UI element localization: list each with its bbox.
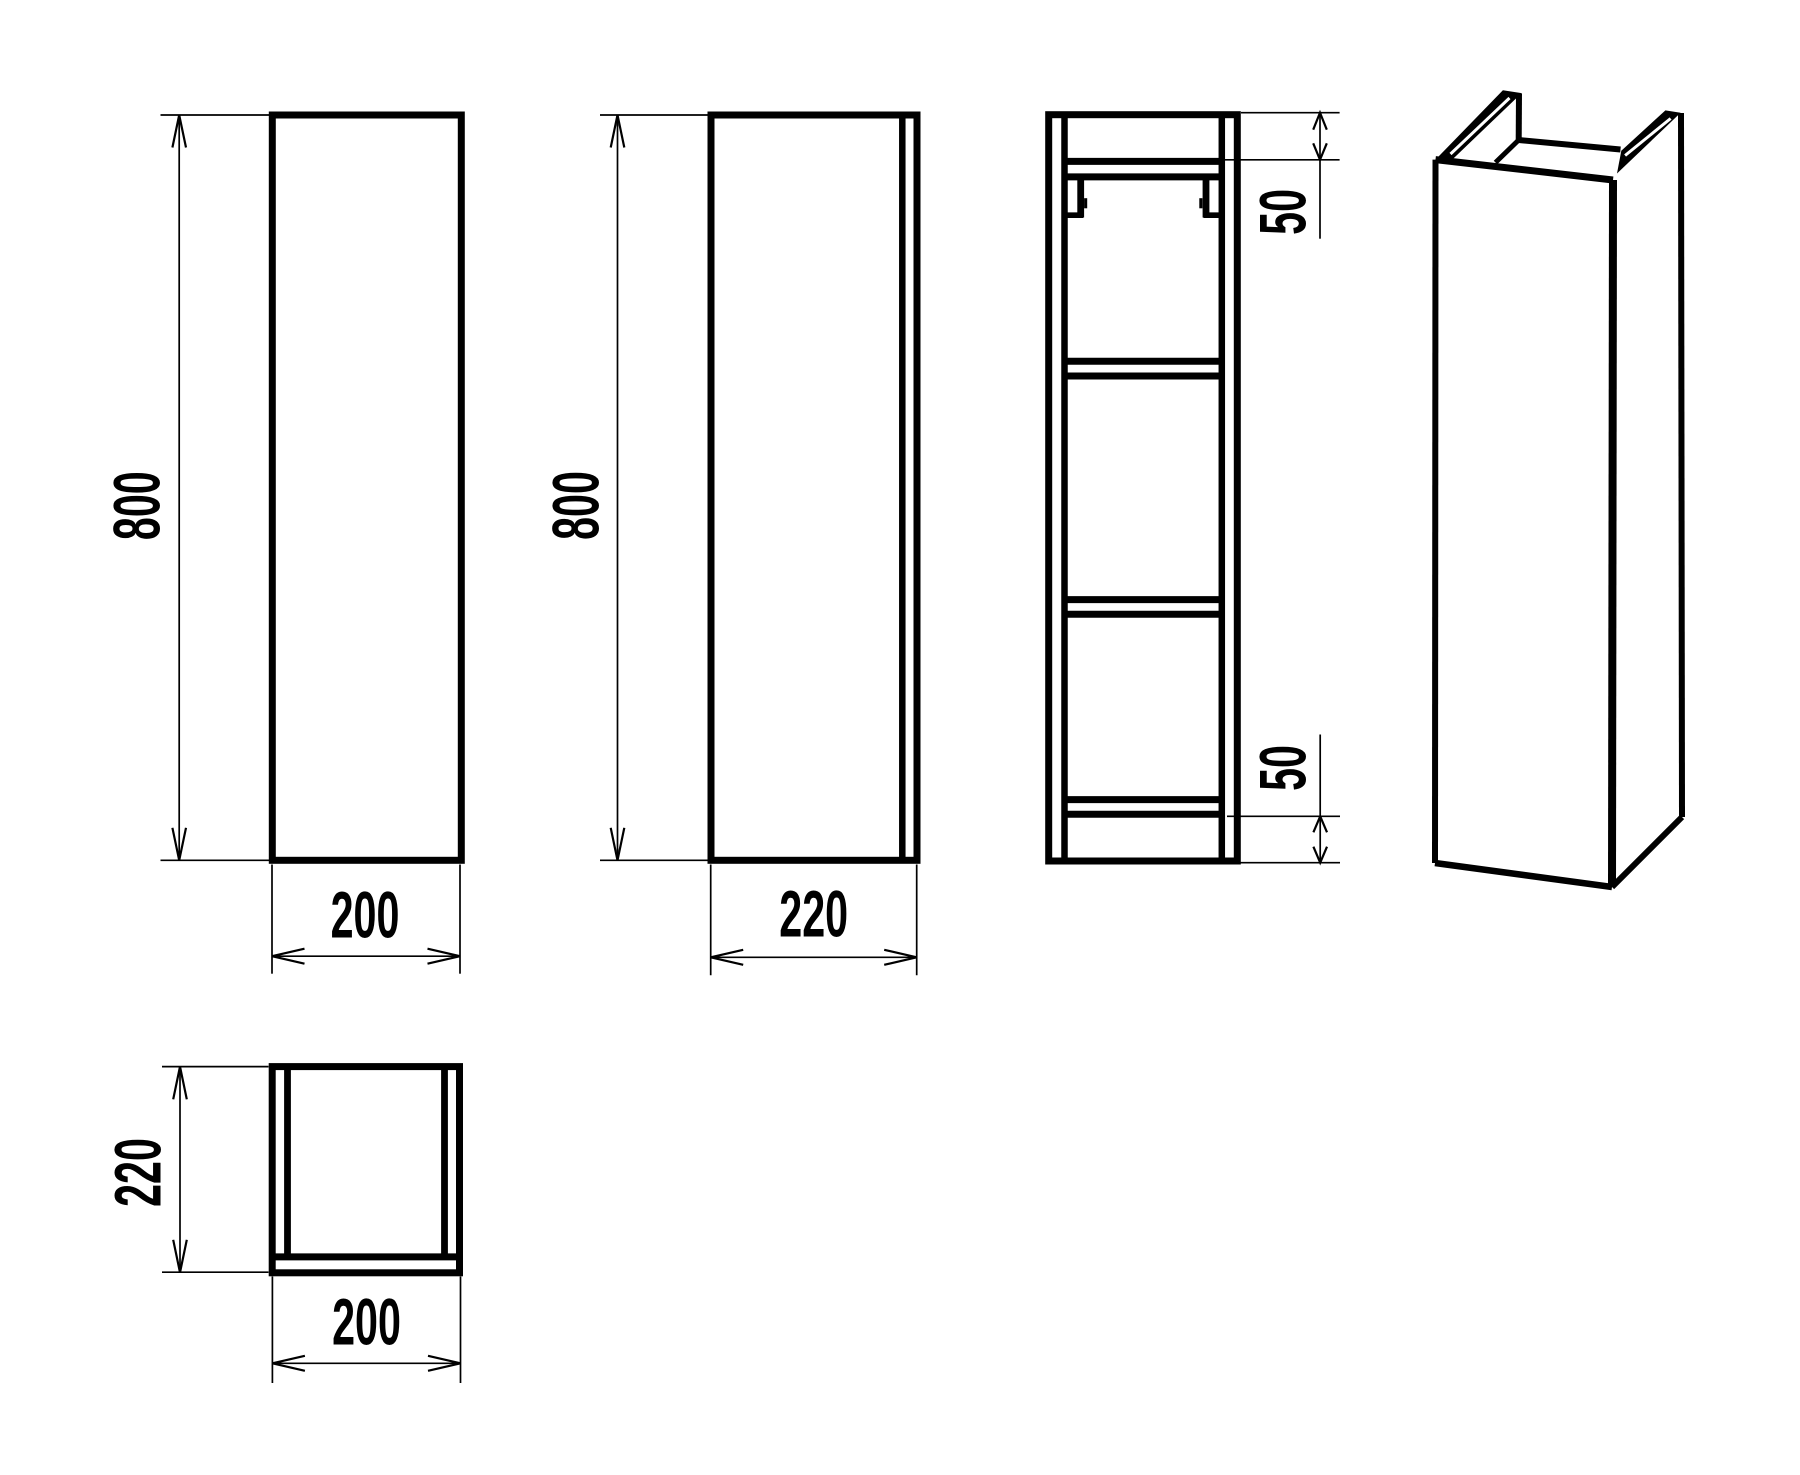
svg-text:220: 220 <box>100 1138 174 1207</box>
svg-text:50: 50 <box>1246 189 1320 235</box>
svg-text:800: 800 <box>539 471 613 540</box>
svg-text:200: 200 <box>332 1285 401 1359</box>
svg-text:220: 220 <box>779 877 848 951</box>
svg-text:200: 200 <box>331 878 400 952</box>
svg-text:50: 50 <box>1245 745 1319 791</box>
svg-text:800: 800 <box>100 471 174 540</box>
